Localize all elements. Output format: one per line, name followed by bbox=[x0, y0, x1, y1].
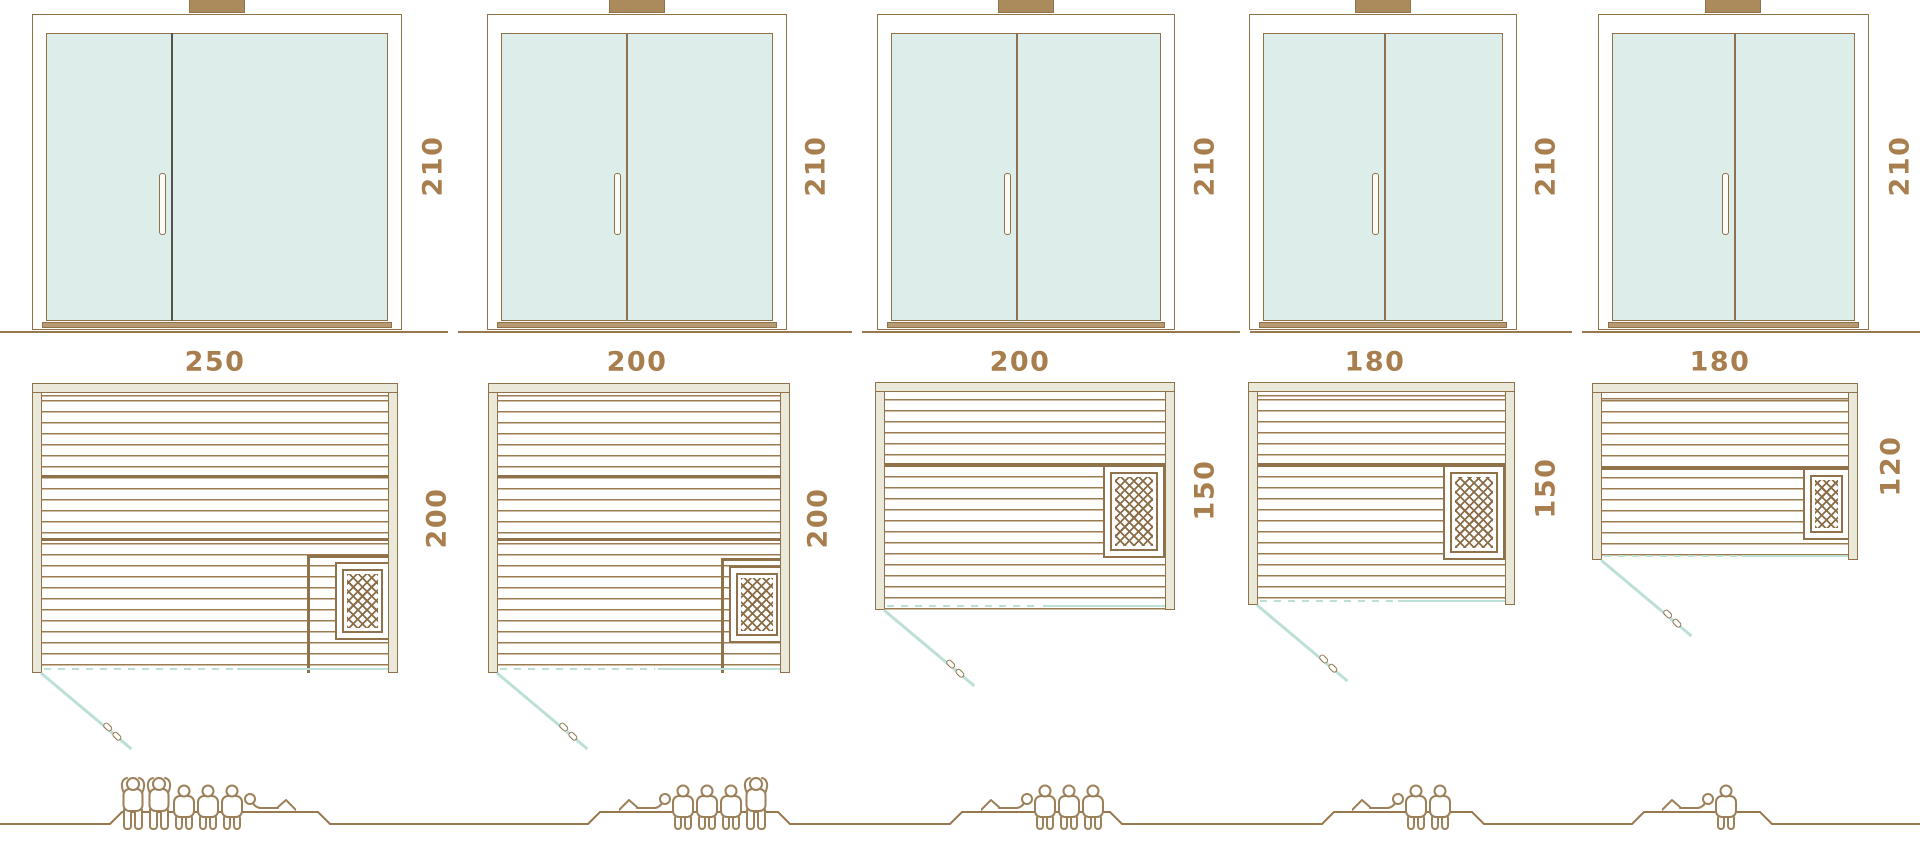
door-opening-dashed-line bbox=[44, 668, 234, 671]
sauna-unit-1: 210 250 200 bbox=[32, 0, 452, 856]
door-opening-dashed-line bbox=[1260, 600, 1395, 603]
person-lying_right-icon bbox=[619, 794, 670, 810]
door-height-label: 210 bbox=[418, 136, 449, 197]
sauna-unit-3: 210 200 150 bbox=[877, 0, 1257, 856]
roof-vent-icon bbox=[189, 0, 245, 13]
glass-front-line bbox=[658, 668, 780, 671]
person-lying_right-icon bbox=[1352, 794, 1403, 810]
bench-edge-line bbox=[498, 475, 780, 478]
door-front-elevation bbox=[877, 14, 1175, 330]
door-panel-divider bbox=[1384, 33, 1386, 321]
door-handle-icon bbox=[159, 173, 166, 235]
plan-depth-label: 150 bbox=[1190, 460, 1221, 521]
door-panel-divider bbox=[626, 33, 628, 321]
door-panel-divider bbox=[171, 33, 173, 321]
person-sitting-icon bbox=[198, 786, 218, 830]
person-sitting-icon bbox=[1035, 786, 1055, 830]
glass-front-line bbox=[1742, 555, 1848, 558]
plan-width-label: 180 bbox=[1690, 347, 1751, 378]
plan-depth-label: 200 bbox=[422, 488, 453, 549]
roof-vent-icon bbox=[609, 0, 665, 13]
person-sitting-icon bbox=[697, 786, 717, 830]
door-handle-plan-icon bbox=[1660, 607, 1686, 633]
floor-plan bbox=[1592, 383, 1858, 560]
door-handle-icon bbox=[614, 173, 621, 235]
person-sitting-icon bbox=[174, 786, 194, 830]
capacity-group bbox=[1662, 768, 1738, 832]
bench-divider-line bbox=[307, 555, 388, 558]
door-front-elevation bbox=[32, 14, 402, 330]
floor-plan bbox=[1248, 382, 1515, 605]
door-panel-divider bbox=[1734, 33, 1736, 321]
door-height-label: 210 bbox=[801, 136, 832, 197]
heater-hatch bbox=[1455, 477, 1493, 548]
plan-wall-top bbox=[1248, 382, 1515, 392]
bench-edge-line bbox=[42, 475, 388, 478]
roof-vent-icon bbox=[1355, 0, 1411, 13]
door-opening-dashed-line bbox=[500, 668, 655, 671]
door-opening-dashed-line bbox=[1604, 555, 1739, 558]
door-sill bbox=[1608, 322, 1859, 328]
door-handle-plan-icon bbox=[556, 720, 582, 746]
plan-wall-right bbox=[1505, 382, 1515, 605]
door-handle-plan-icon bbox=[100, 720, 126, 746]
glass-door-panels bbox=[46, 33, 388, 321]
plan-width-label: 200 bbox=[607, 347, 668, 378]
door-handle-plan-icon bbox=[1316, 652, 1342, 678]
plan-depth-label: 150 bbox=[1531, 458, 1562, 519]
door-sill bbox=[1259, 322, 1507, 328]
capacity-group bbox=[1352, 768, 1452, 832]
heater-icon bbox=[335, 562, 390, 640]
bench-edge-line bbox=[498, 538, 780, 541]
plan-wall-right bbox=[388, 383, 398, 673]
door-handle-icon bbox=[1004, 173, 1011, 235]
door-height-label: 210 bbox=[1531, 136, 1562, 197]
floor-plan bbox=[875, 382, 1175, 610]
plan-width-label: 250 bbox=[185, 347, 246, 378]
door-handle-plan-icon bbox=[943, 657, 969, 683]
glass-door-panels bbox=[501, 33, 773, 321]
glass-front-line bbox=[1043, 605, 1165, 608]
capacity-group bbox=[619, 768, 769, 832]
glass-front-line bbox=[1398, 600, 1505, 603]
plan-wall-left bbox=[488, 383, 498, 673]
capacity-group bbox=[981, 768, 1105, 832]
heater-hatch bbox=[347, 574, 378, 628]
heater-hatch bbox=[1815, 480, 1838, 528]
sauna-unit-5: 210 180 120 bbox=[1598, 0, 1920, 856]
person-sitting-icon bbox=[1716, 786, 1736, 830]
plan-wall-top bbox=[875, 382, 1175, 392]
bench-edge-line bbox=[42, 538, 388, 541]
floor-plan bbox=[488, 383, 790, 673]
glass-front-line bbox=[237, 668, 388, 671]
plan-wall-left bbox=[1592, 383, 1602, 560]
glass-door-panels bbox=[891, 33, 1161, 321]
person-sitting-icon bbox=[222, 786, 242, 830]
plan-wall-top bbox=[488, 383, 790, 393]
plan-wall-right bbox=[780, 383, 790, 673]
door-handle-icon bbox=[1722, 173, 1729, 235]
person-lying_right-icon bbox=[981, 794, 1032, 810]
person-sitting-icon bbox=[1083, 786, 1103, 830]
heater-icon bbox=[1803, 468, 1850, 540]
plan-wall-top bbox=[32, 383, 398, 393]
person-lying_left-icon bbox=[245, 794, 296, 810]
sauna-unit-4: 210 180 150 bbox=[1249, 0, 1589, 856]
plan-width-label: 180 bbox=[1345, 347, 1406, 378]
door-height-label: 210 bbox=[1885, 136, 1916, 197]
roof-vent-icon bbox=[1705, 0, 1761, 13]
door-handle-icon bbox=[1372, 173, 1379, 235]
plan-wall-left bbox=[32, 383, 42, 673]
person-sitting-icon bbox=[1406, 786, 1426, 830]
heater-icon bbox=[729, 566, 785, 643]
heater-icon bbox=[1103, 465, 1165, 558]
person-sitting-icon bbox=[1430, 786, 1450, 830]
plan-wall-right bbox=[1165, 382, 1175, 610]
heater-hatch bbox=[741, 578, 773, 631]
door-sill bbox=[42, 322, 392, 328]
plan-wall-right bbox=[1848, 383, 1858, 560]
person-standing-icon bbox=[148, 778, 170, 829]
plan-width-label: 200 bbox=[990, 347, 1051, 378]
door-front-elevation bbox=[1598, 14, 1869, 330]
door-sill bbox=[887, 322, 1165, 328]
door-opening-dashed-line bbox=[887, 605, 1039, 608]
person-lying_right-icon bbox=[1662, 794, 1713, 810]
heater-hatch bbox=[1115, 477, 1153, 546]
plan-depth-label: 120 bbox=[1876, 436, 1907, 497]
door-front-elevation bbox=[1249, 14, 1517, 330]
person-standing-icon bbox=[122, 778, 144, 829]
bench-divider-line bbox=[307, 555, 310, 673]
door-sill bbox=[497, 322, 777, 328]
person-sitting-icon bbox=[673, 786, 693, 830]
floor-plan bbox=[32, 383, 398, 673]
person-sitting-icon bbox=[721, 786, 741, 830]
heater-icon bbox=[1443, 465, 1505, 560]
plan-depth-label: 200 bbox=[803, 488, 834, 549]
plan-wall-left bbox=[1248, 382, 1258, 605]
roof-vent-icon bbox=[998, 0, 1054, 13]
sauna-unit-2: 210 200 200 bbox=[487, 0, 867, 856]
person-standing-icon bbox=[745, 778, 767, 829]
bench-divider-line bbox=[721, 558, 780, 561]
glass-door-panels bbox=[1263, 33, 1503, 321]
bench-divider-line bbox=[721, 558, 724, 673]
door-height-label: 210 bbox=[1190, 136, 1221, 197]
person-sitting-icon bbox=[1059, 786, 1079, 830]
capacity-group bbox=[120, 768, 296, 832]
door-panel-divider bbox=[1016, 33, 1018, 321]
plan-wall-left bbox=[875, 382, 885, 610]
door-front-elevation bbox=[487, 14, 787, 330]
plan-wall-top bbox=[1592, 383, 1858, 393]
